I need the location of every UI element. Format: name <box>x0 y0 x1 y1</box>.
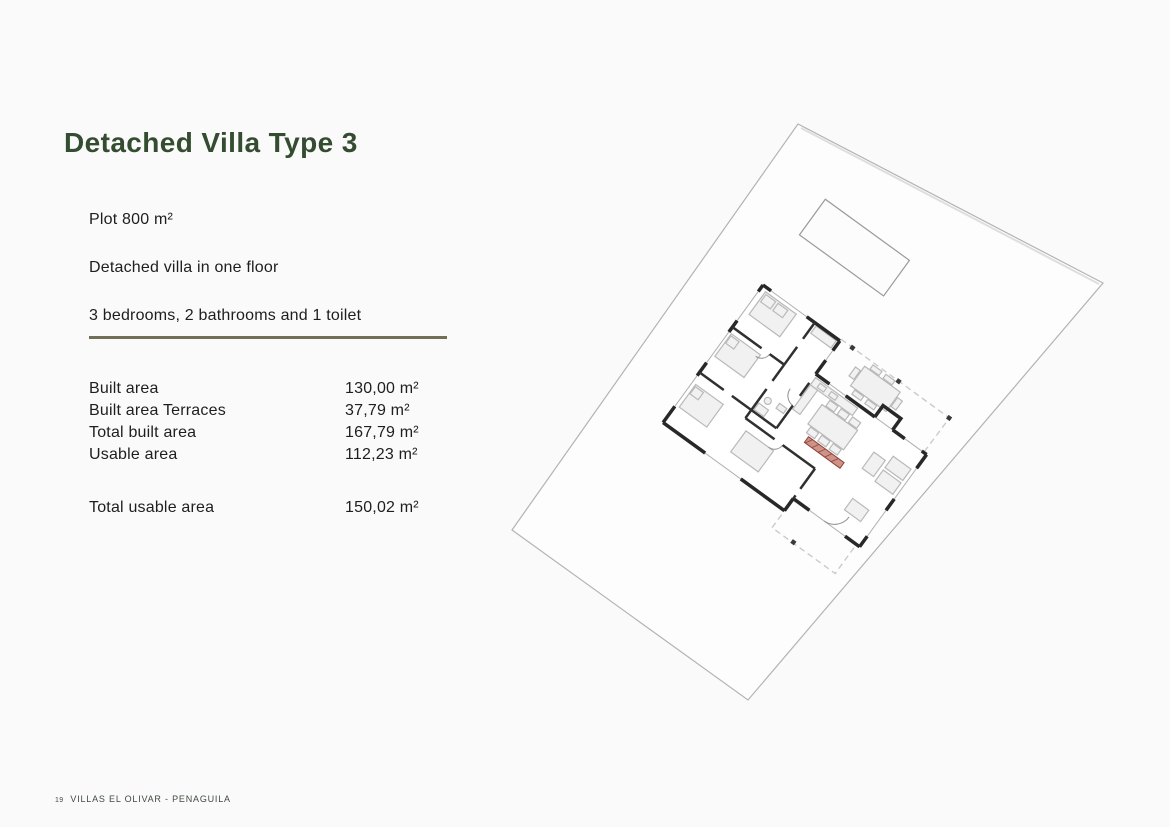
footer: 19 VILLAS EL OLIVAR - PENAGUILA <box>55 794 231 804</box>
brochure-page: Detached Villa Type 3 Plot 800 m² Detach… <box>0 0 1170 827</box>
site-plan-svg <box>0 0 1170 827</box>
site-plan <box>0 0 1170 827</box>
footer-project-name: VILLAS EL OLIVAR - PENAGUILA <box>70 794 230 804</box>
page-number: 19 <box>55 797 63 804</box>
plot-boundary <box>0 0 1103 700</box>
